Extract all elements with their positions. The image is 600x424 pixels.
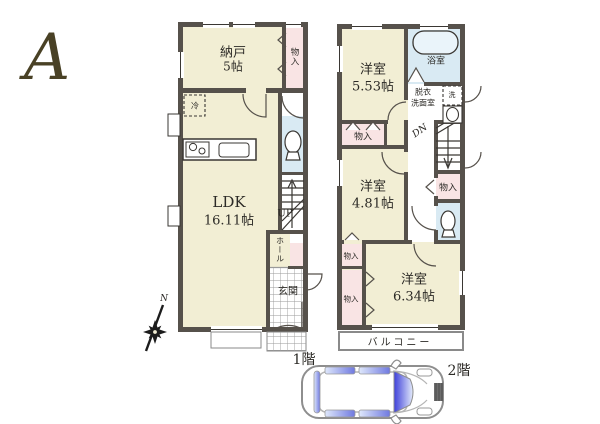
washroom-label-2: 洗面室 <box>411 98 435 109</box>
car-illustration <box>302 360 443 424</box>
entrance-label: 玄関 <box>278 283 298 298</box>
floor1-plan <box>168 21 322 351</box>
stairs-up-label: UP <box>277 209 292 220</box>
room-nando-size: 5帖 <box>223 58 243 75</box>
side-window <box>359 410 390 417</box>
kitchen-sink <box>219 143 249 157</box>
compass-north-label: N <box>160 294 168 304</box>
stove-burner <box>189 143 196 150</box>
compass-icon <box>142 305 167 351</box>
side-window <box>325 410 355 417</box>
hall-label: ホール <box>275 237 286 264</box>
floorplan-page: A <box>0 0 600 424</box>
casement-window-arc <box>465 152 481 168</box>
side-window <box>359 367 390 374</box>
room-ldk-name: LDK <box>212 193 245 211</box>
closet-label: 物入 <box>288 48 300 67</box>
washer-label: 洗 <box>449 90 456 100</box>
floor1-label: 1階 <box>293 349 316 369</box>
room-553-size: 5.53帖 <box>352 76 394 95</box>
floor2-label: 2階 <box>448 360 471 380</box>
stove-burner <box>199 148 205 154</box>
front-grille <box>434 383 443 401</box>
terrace-step <box>211 332 261 348</box>
closet-c-label: 物入 <box>344 251 359 262</box>
washbasin-icon <box>443 106 462 123</box>
room-481-size: 4.81帖 <box>352 193 394 212</box>
fridge-label: 冷 <box>191 101 199 112</box>
room-634-size: 6.34帖 <box>393 286 435 305</box>
headlight <box>417 369 432 376</box>
casement-window-arc <box>465 86 481 102</box>
bath-label: 浴室 <box>427 54 445 67</box>
balcony-label: バルコニー <box>368 334 433 349</box>
rear-window <box>314 371 320 413</box>
door-arc-front-entry <box>306 274 322 290</box>
washroom-label-1: 脱衣 <box>415 87 431 98</box>
side-window <box>325 367 355 374</box>
closet-d-label: 物入 <box>344 294 359 305</box>
room-ldk-size: 16.11帖 <box>204 210 254 229</box>
closet-b-label: 物入 <box>439 181 457 194</box>
headlight <box>417 408 432 415</box>
closet-a-label: 物入 <box>354 130 372 143</box>
bathtub-icon <box>413 31 458 54</box>
kitchen-counter <box>183 139 256 160</box>
toilet-icon-2f <box>441 211 455 237</box>
toilet-icon-1f <box>285 131 301 160</box>
